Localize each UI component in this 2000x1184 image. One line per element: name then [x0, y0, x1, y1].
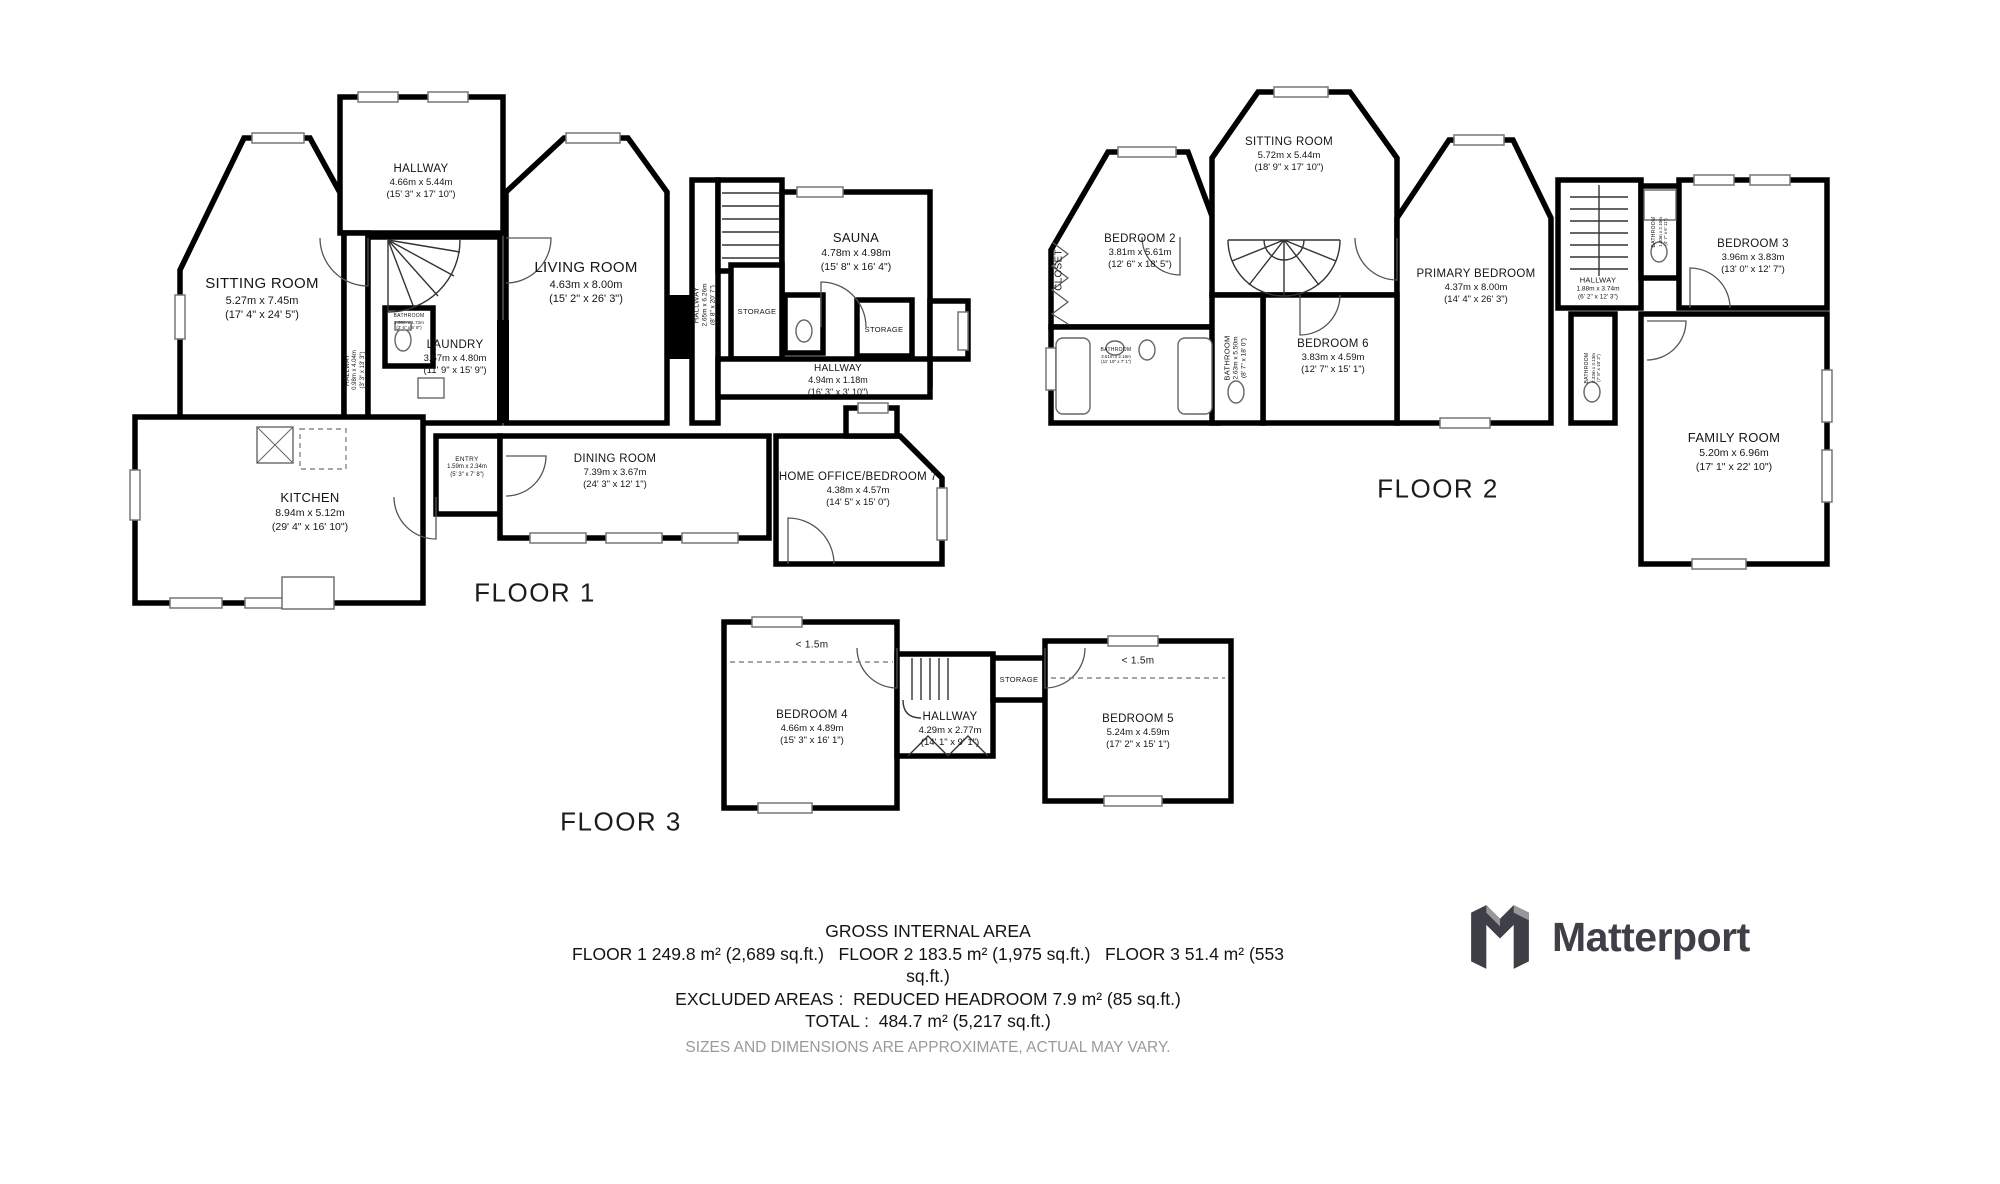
room-label-closet-f2: CLOSET [1053, 249, 1066, 291]
floorplan-page: SITTING ROOM 5.27m x 7.45m (17' 4" x 24'… [0, 0, 2000, 1184]
room-label-entry-f1: ENTRY 1.59m x 2.34m (5' 3" x 7' 8") [447, 456, 487, 480]
room-label-storage1-f1: STORAGE [738, 307, 777, 317]
room-label-hallway-narrow-f1: HALLWAY 0.98m x 4.04m (3' 3" x 13' 3") [344, 350, 368, 390]
floor-areas-line-wrap: sq.ft.) [478, 965, 1378, 988]
area-summary: GROSS INTERNAL AREA FLOOR 1 249.8 m² (2,… [478, 920, 1378, 1059]
room-label-hallway-top-f1: HALLWAY 4.66m x 5.44m (15' 3" x 17' 10") [387, 162, 456, 202]
room-label-bathroom2-f2: BATHROOM 2.33m x 3.13m (7' 8" x 10' 3") [1584, 353, 1602, 384]
room-label-home-office-f1: HOME OFFICE/BEDROOM 7 4.38m x 4.57m (14'… [779, 470, 937, 510]
room-label-living-room-f1: LIVING ROOM 4.63m x 8.00m (15' 2" x 26' … [534, 258, 637, 306]
room-label-sitting-room-f2: SITTING ROOM 5.72m x 5.44m (18' 9" x 17'… [1245, 135, 1333, 175]
room-label-bedroom5-f3: BEDROOM 5 5.24m x 4.59m (17' 2" x 15' 1"… [1102, 712, 1174, 752]
room-label-bedroom4-f3: BEDROOM 4 4.66m x 4.89m (15' 3" x 16' 1"… [776, 708, 848, 748]
floor-areas-line: FLOOR 1 249.8 m² (2,689 sq.ft.) FLOOR 2 … [478, 943, 1378, 966]
matterport-logo: Matterport [1462, 899, 1750, 975]
room-label-family-room-f2: FAMILY ROOM 5.20m x 6.96m (17' 1" x 22' … [1688, 430, 1780, 474]
room-label-bathroom-strip-f2: BATHROOM 3.61m x 2.16m (11' 10" x 7' 1") [1101, 347, 1132, 365]
room-outline-hallway-narrow-f1 [344, 233, 368, 423]
disclaimer-text: SIZES AND DIMENSIONS ARE APPROXIMATE, AC… [478, 1037, 1378, 1060]
gross-internal-area-title: GROSS INTERNAL AREA [478, 920, 1378, 943]
room-label-hallway-f3: HALLWAY 4.29m x 2.77m (14' 1" x 9' 1") [919, 710, 982, 750]
floor3-title: FLOOR 3 [560, 807, 682, 838]
room-label-sitting-room-f1: SITTING ROOM 5.27m x 7.45m (17' 4" x 24'… [205, 274, 319, 322]
matterport-wordmark: Matterport [1552, 914, 1750, 961]
matterport-logo-icon [1462, 899, 1538, 975]
room-label-dining-f1: DINING ROOM 7.39m x 3.67m (24' 3" x 12' … [574, 452, 657, 492]
excluded-areas-line: EXCLUDED AREAS : REDUCED HEADROOM 7.9 m²… [478, 988, 1378, 1011]
room-label-laundry-f1: LAUNDRY 3.57m x 4.80m (11' 9" x 15' 9") [423, 338, 486, 378]
room-label-hallway-horiz-f1: HALLWAY 4.94m x 1.18m (16' 3" x 3' 10") [808, 362, 868, 398]
floor1-title: FLOOR 1 [474, 578, 596, 609]
headroom-note-right-f3: < 1.5m [1122, 655, 1155, 668]
room-label-bathroom-vert-f2: BATHROOM 2.63m x 5.50m (8' 7" x 18' 0") [1223, 335, 1250, 380]
room-label-bedroom2-f2: BEDROOM 2 3.81m x 5.61m (12' 6" x 18' 5"… [1104, 232, 1176, 272]
total-area-line: TOTAL : 484.7 m² (5,217 sq.ft.) [478, 1010, 1378, 1033]
room-label-storage2-f1: STORAGE [865, 325, 904, 335]
headroom-note-left-f3: < 1.5m [796, 639, 829, 652]
floor2-title: FLOOR 2 [1377, 474, 1499, 505]
room-label-hallway-f2: HALLWAY 1.88m x 3.74m (6' 2" x 12' 3") [1577, 276, 1620, 303]
room-label-hallway-vert-f1: HALLWAY 2.65m x 6.26m (8' 8" x 20' 7") [692, 284, 719, 327]
room-label-kitchen-f1: KITCHEN 8.94m x 5.12m (29' 4" x 16' 10") [272, 490, 348, 534]
room-label-sauna-f1: SAUNA 4.78m x 4.98m (15' 8" x 16' 4") [821, 230, 891, 274]
room-label-bedroom6-f2: BEDROOM 6 3.83m x 4.59m (12' 7" x 15' 1"… [1297, 337, 1369, 377]
room-label-primary-bedroom-f2: PRIMARY BEDROOM 4.37m x 8.00m (14' 4" x … [1416, 267, 1535, 307]
room-label-bathroom-top-f2: BATHROOM 1.40m x 2.10m (4' 7" x 6' 11") [1651, 217, 1669, 248]
room-label-bathroom-f1: BATHROOM 1.06m x 1.72m (3' 6" x 5' 8") [394, 313, 425, 331]
room-label-bedroom3-f2: BEDROOM 3 3.96m x 3.83m (13' 0" x 12' 7"… [1717, 237, 1789, 277]
room-label-storage-f3: STORAGE [1000, 675, 1039, 685]
room-outline-sitting-room-f2 [1212, 92, 1397, 295]
